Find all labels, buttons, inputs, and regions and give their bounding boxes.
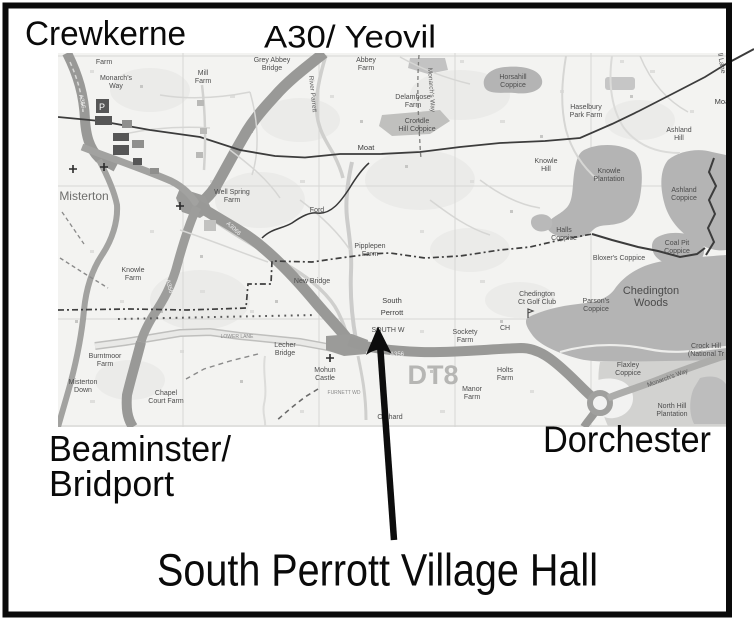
svg-text:Farm: Farm [405, 102, 422, 109]
svg-text:Crock Hill: Crock Hill [691, 343, 721, 350]
svg-text:Farm: Farm [464, 394, 481, 401]
svg-text:Halls: Halls [556, 227, 572, 234]
svg-text:South: South [382, 296, 402, 305]
svg-text:Way: Way [109, 83, 123, 90]
svg-text:Knowle: Knowle [535, 158, 558, 165]
svg-text:Court Farm: Court Farm [148, 398, 184, 405]
svg-text:A356: A356 [390, 352, 405, 358]
svg-text:Lecher: Lecher [274, 342, 296, 349]
svg-text:Plantation: Plantation [593, 176, 624, 183]
svg-text:Ashland: Ashland [666, 127, 691, 134]
svg-text:Coppice: Coppice [500, 82, 526, 89]
svg-text:Flaxley: Flaxley [617, 362, 640, 369]
svg-text:Farm: Farm [96, 59, 113, 66]
svg-text:Farm: Farm [195, 78, 212, 85]
svg-text:Mohun: Mohun [314, 367, 336, 374]
svg-text:Coppice: Coppice [664, 248, 690, 255]
svg-text:Chedington: Chedington [519, 291, 555, 298]
svg-text:Coal Pit: Coal Pit [665, 240, 690, 247]
svg-text:Abbey: Abbey [356, 57, 376, 64]
svg-text:New Bridge: New Bridge [294, 278, 330, 285]
svg-text:Knowle: Knowle [122, 267, 145, 274]
svg-text:Hill Coppice: Hill Coppice [398, 126, 435, 133]
svg-text:Grey Abbey: Grey Abbey [254, 57, 291, 64]
svg-text:Ashland: Ashland [671, 187, 696, 194]
svg-text:Pipplepen: Pipplepen [354, 243, 385, 250]
svg-text:Hill: Hill [541, 166, 551, 173]
svg-text:Farm: Farm [497, 375, 514, 382]
svg-text:Castle: Castle [315, 375, 335, 382]
svg-text:Haselbury: Haselbury [570, 104, 602, 111]
svg-text:Moat: Moat [358, 143, 376, 152]
svg-text:Holts: Holts [497, 367, 513, 374]
svg-text:Hill: Hill [674, 135, 684, 142]
svg-text:Manor: Manor [462, 386, 483, 393]
svg-text:(National Tr: (National Tr [688, 351, 725, 358]
svg-text:Plantation: Plantation [656, 411, 687, 418]
svg-text:A30/ Yeovil: A30/ Yeovil [264, 19, 436, 55]
svg-text:Farm: Farm [224, 197, 241, 204]
svg-text:Ford: Ford [310, 207, 325, 214]
svg-text:Well Spring: Well Spring [214, 189, 250, 196]
svg-text:Farm: Farm [358, 65, 375, 72]
svg-text:Bridge: Bridge [262, 65, 282, 72]
svg-text:Chapel: Chapel [155, 390, 178, 397]
svg-text:Crondle: Crondle [405, 118, 430, 125]
svg-text:Orchard: Orchard [377, 414, 402, 421]
svg-text:Misterton: Misterton [59, 189, 108, 203]
svg-text:Mill: Mill [198, 70, 209, 77]
svg-text:DT8: DT8 [407, 360, 458, 390]
svg-text:Dorchester: Dorchester [543, 419, 711, 460]
svg-text:Bridge: Bridge [275, 350, 295, 357]
svg-text:Monarch's: Monarch's [100, 75, 133, 82]
svg-text:Horsahill: Horsahill [499, 74, 527, 81]
svg-text:Coppice: Coppice [671, 195, 697, 202]
svg-text:Coppice: Coppice [551, 235, 577, 242]
svg-text:Knowle: Knowle [598, 168, 621, 175]
svg-text:Ct Golf Club: Ct Golf Club [518, 299, 556, 306]
svg-text:Beaminster/: Beaminster/ [49, 429, 231, 469]
svg-text:Farm: Farm [125, 275, 142, 282]
svg-text:Perrott: Perrott [381, 308, 404, 317]
svg-text:Bloxer's Coppice: Bloxer's Coppice [593, 255, 645, 262]
svg-text:Woods: Woods [634, 297, 669, 309]
svg-text:P: P [99, 102, 105, 112]
svg-text:Delamhose: Delamhose [395, 94, 431, 101]
svg-text:South Perrott Village Hall: South Perrott Village Hall [157, 545, 598, 596]
svg-text:Farm: Farm [362, 251, 379, 258]
svg-text:Burntmoor: Burntmoor [89, 353, 122, 360]
svg-text:Chedington: Chedington [623, 285, 679, 297]
svg-text:Down: Down [74, 387, 92, 394]
svg-text:Misterton: Misterton [69, 379, 98, 386]
svg-text:Coppice: Coppice [615, 370, 641, 377]
svg-text:Park Farm: Park Farm [570, 112, 603, 119]
svg-text:LOWER LANE: LOWER LANE [221, 334, 254, 340]
svg-text:Parson's: Parson's [582, 298, 610, 305]
svg-text:Coppice: Coppice [583, 306, 609, 313]
svg-text:FURNETT WD: FURNETT WD [328, 390, 361, 396]
svg-text:Farm: Farm [97, 361, 114, 368]
svg-text:Sockety: Sockety [453, 329, 478, 336]
svg-text:Bridport: Bridport [49, 464, 174, 504]
svg-text:Farm: Farm [457, 337, 474, 344]
svg-text:CH: CH [500, 325, 510, 332]
svg-text:Crewkerne: Crewkerne [25, 15, 186, 53]
svg-text:North Hill: North Hill [658, 403, 687, 410]
